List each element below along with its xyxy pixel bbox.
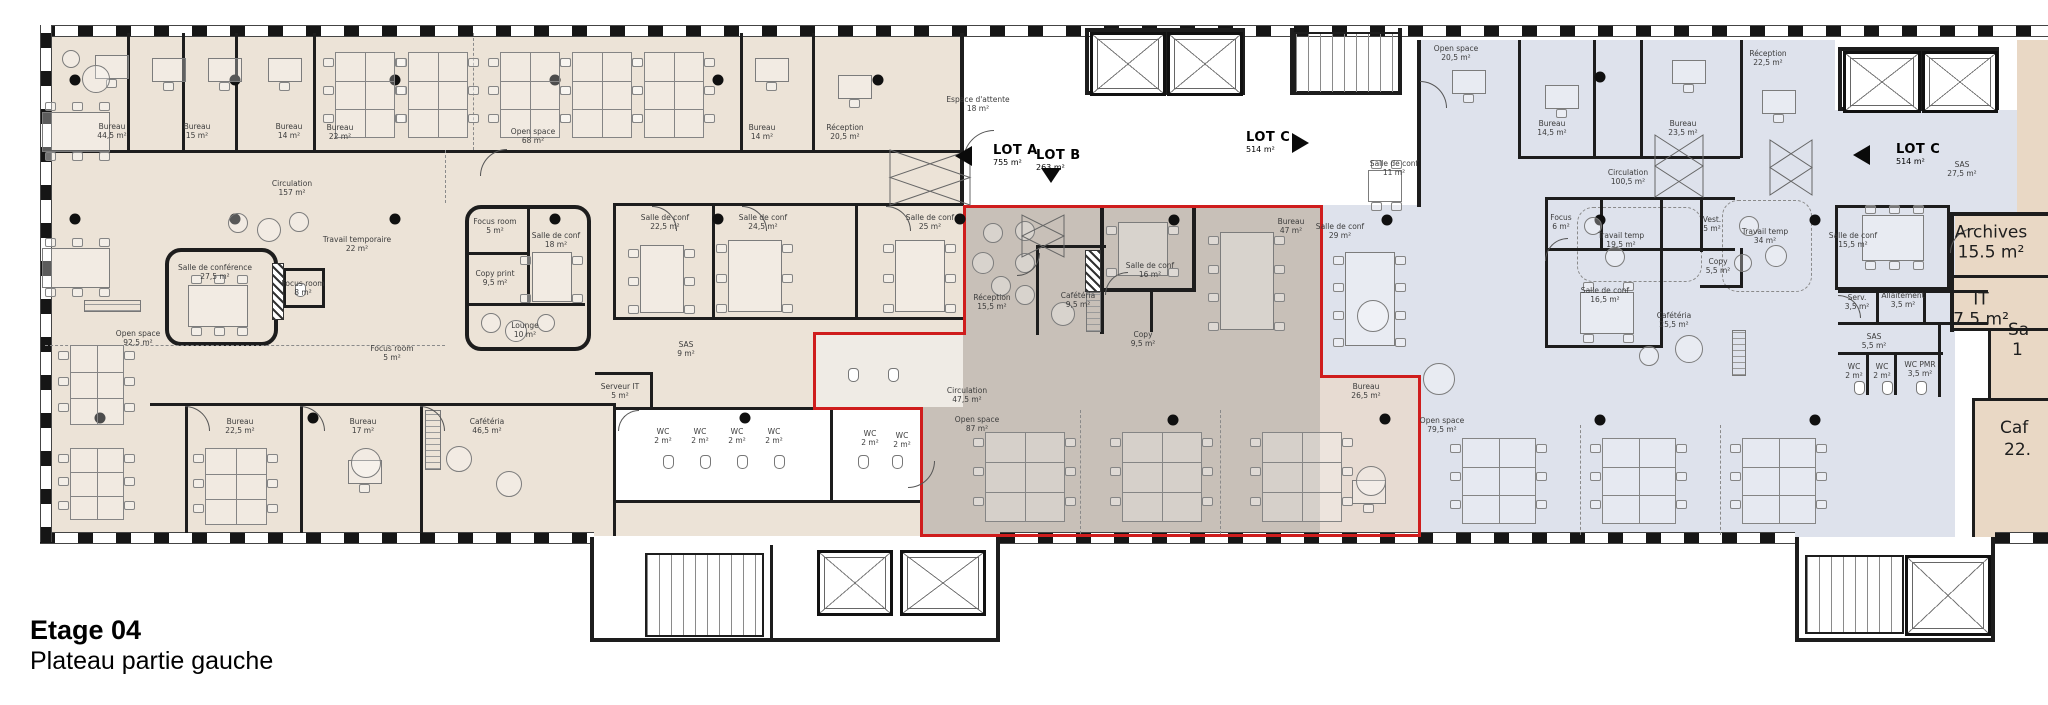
zone-fill [2017, 40, 2048, 215]
chair [267, 479, 278, 488]
wall [613, 403, 616, 536]
room-label-a24: Bureau17 m² [350, 417, 377, 435]
chair [163, 82, 174, 91]
chair [973, 497, 984, 506]
elevator [1922, 51, 1998, 113]
column-dot [713, 214, 724, 225]
wall [1838, 47, 1842, 110]
chair [1683, 84, 1694, 93]
chair [1110, 467, 1121, 476]
chair [1730, 472, 1741, 481]
chair [488, 86, 499, 95]
wall [1700, 285, 1743, 288]
chair [1274, 265, 1285, 274]
wall [996, 537, 1000, 642]
round-table [481, 313, 501, 333]
chair [396, 86, 407, 95]
room-label-a15: Open space92,5 m² [116, 329, 160, 347]
desk-bank [644, 52, 704, 138]
meeting-table [188, 285, 248, 327]
chair [468, 58, 479, 67]
room-label-a4: Bureau22 m² [327, 123, 354, 141]
round-table [537, 314, 555, 332]
chair [1623, 334, 1634, 343]
lot-outline [813, 332, 816, 410]
chair [684, 249, 695, 258]
room-label-c11: Salle de conf16,5 m² [1581, 286, 1629, 304]
chair [632, 114, 643, 123]
chair [396, 58, 407, 67]
chair [323, 58, 334, 67]
wall [650, 372, 653, 407]
chair [1676, 444, 1687, 453]
meeting-table [532, 252, 572, 302]
wall [1972, 398, 1975, 537]
chair [1913, 261, 1924, 270]
wall [127, 33, 130, 150]
wall [1660, 197, 1663, 250]
round-table [1734, 254, 1752, 272]
room-label-a9: Travail temporaire22 m² [323, 235, 391, 253]
wall [1795, 638, 1995, 642]
chair [124, 477, 135, 486]
chair [520, 256, 531, 265]
chair [1250, 467, 1261, 476]
lot-marker-lotC1: LOT C514 m² [1246, 130, 1290, 154]
chair [488, 58, 499, 67]
chair [704, 58, 715, 67]
chair [1202, 467, 1213, 476]
column-dot [70, 75, 81, 86]
chair [193, 454, 204, 463]
elevator [1843, 51, 1921, 113]
chair [99, 102, 110, 111]
chair [45, 288, 56, 297]
column-dot [873, 75, 884, 86]
room-label-a21: Serveur IT5 m² [601, 382, 640, 400]
lot-marker-lotC2: LOT C514 m² [1896, 142, 1940, 166]
lot-arrow-lotC1 [1292, 133, 1309, 153]
chair [704, 114, 715, 123]
round-table [1015, 285, 1035, 305]
meeting-table [728, 240, 782, 312]
facade-wall [40, 25, 2048, 37]
round-table [446, 446, 472, 472]
wall [1795, 537, 1799, 642]
wall [527, 205, 530, 305]
wall [1640, 40, 1643, 158]
chair [1865, 261, 1876, 270]
chair [1208, 265, 1219, 274]
wall [1545, 197, 1735, 200]
desk [1672, 60, 1706, 84]
chair [237, 327, 248, 336]
chair [632, 58, 643, 67]
room-label-a19: Salle de conf25 m² [906, 213, 954, 231]
chair [1395, 256, 1406, 265]
chair [1450, 444, 1461, 453]
desk-bank [572, 52, 632, 138]
chair [1371, 202, 1382, 211]
lot-outline [963, 205, 966, 335]
round-table [82, 65, 110, 93]
chair [1065, 467, 1076, 476]
chair [323, 86, 334, 95]
wall [595, 372, 653, 375]
chair [1463, 94, 1474, 103]
chair [1583, 334, 1594, 343]
chair [1065, 438, 1076, 447]
meeting-table [640, 245, 684, 313]
clipped-label: Caf [2000, 418, 2028, 438]
room-label-a3: Bureau14 m² [276, 122, 303, 140]
chair [124, 501, 135, 510]
room-label-d5: SAS5,5 m² [1862, 332, 1887, 350]
desk-bank [205, 448, 267, 525]
wall [740, 33, 743, 150]
rounded-zone-dashed [1722, 200, 1812, 292]
chair [628, 305, 639, 314]
wall [1950, 275, 2048, 278]
chair [219, 82, 230, 91]
chair [214, 327, 225, 336]
room-label-a23: Bureau22,5 m² [225, 417, 254, 435]
room-label-c15: Open space79,5 m² [1420, 416, 1464, 434]
room-label-b1: Réception15,5 m² [973, 293, 1010, 311]
desk-bank [1262, 432, 1342, 522]
chair [72, 152, 83, 161]
chair [1110, 497, 1121, 506]
wc-fixture [858, 455, 869, 469]
column-dot [1810, 215, 1821, 226]
round-table [1605, 247, 1625, 267]
room-label-d7: WC2 m² [1873, 362, 1890, 380]
stair [645, 553, 764, 637]
chair [99, 288, 110, 297]
column-dot [1380, 414, 1391, 425]
chair [1065, 497, 1076, 506]
column-dot [1168, 415, 1179, 426]
round-table [1357, 300, 1389, 332]
lot-outline [920, 534, 1421, 537]
chair [1730, 500, 1741, 509]
wall [235, 33, 238, 150]
round-table [1423, 363, 1455, 395]
chair [1816, 444, 1827, 453]
round-table [228, 213, 248, 233]
floor-plan-canvas: Bureau44,5 m²Bureau15 m²Bureau14 m²Burea… [0, 0, 2048, 705]
wall [1938, 322, 1941, 397]
meeting-table [1345, 252, 1395, 346]
room-label-d4: Allaitement3,5 m² [1881, 291, 1924, 309]
chair [58, 477, 69, 486]
wall [283, 268, 325, 271]
column-dot [1595, 415, 1606, 426]
chair [883, 244, 894, 253]
wc-fixture [892, 455, 903, 469]
room-label-a17: Salle de conf22,5 m² [641, 213, 689, 231]
room-label-a2: Bureau15 m² [184, 122, 211, 140]
wall [830, 407, 833, 502]
room-label-c7: SAS27,5 m² [1947, 160, 1976, 178]
wall [283, 305, 325, 308]
dashed-partition [1080, 410, 1081, 534]
desk [268, 58, 302, 82]
wall [1085, 28, 1089, 95]
wall [613, 203, 616, 320]
chair [468, 114, 479, 123]
chair [716, 244, 727, 253]
room-label-c9: Salle de conf15,5 m² [1829, 231, 1877, 249]
chair [782, 304, 793, 313]
elevator [817, 550, 893, 616]
chair [1889, 261, 1900, 270]
chair [1274, 322, 1285, 331]
chair [124, 403, 135, 412]
desk [838, 75, 872, 99]
room-label-b3: Salle de conf16 m² [1126, 261, 1174, 279]
chair [58, 501, 69, 510]
desk [755, 58, 789, 82]
room-label-b7: Open space87 m² [955, 415, 999, 433]
round-table [257, 218, 281, 242]
chair [1168, 226, 1179, 235]
room-label-c8: Travail temp34 m² [1742, 227, 1788, 245]
chair [1395, 311, 1406, 320]
chair [124, 454, 135, 463]
column-dot [955, 214, 966, 225]
round-table [1675, 335, 1703, 363]
room-label-a31: WC2 m² [893, 431, 910, 449]
chair [99, 238, 110, 247]
room-label-a30: WC2 m² [861, 429, 878, 447]
chair [72, 102, 83, 111]
column-dot [1382, 215, 1393, 226]
wall [1518, 40, 1521, 158]
chair [45, 152, 56, 161]
wall [770, 545, 773, 640]
meeting-table [42, 248, 110, 288]
chair [58, 351, 69, 360]
chair [560, 58, 571, 67]
wall [1991, 537, 1995, 642]
stair [1805, 555, 1904, 634]
room-label-b4: Copy9,5 m² [1131, 330, 1156, 348]
chair [72, 238, 83, 247]
chair [124, 351, 135, 360]
wc-fixture [737, 455, 748, 469]
wall [1640, 156, 1740, 159]
chair [716, 304, 727, 313]
chair [1676, 500, 1687, 509]
room-label-b8: Bureau26,5 m² [1351, 382, 1380, 400]
poche-wall [1085, 250, 1101, 292]
room-label-c14: Copy5,5 m² [1706, 257, 1731, 275]
desk-bank [1122, 432, 1202, 522]
wc-fixture [700, 455, 711, 469]
wc-fixture [848, 368, 859, 382]
chair [1450, 500, 1461, 509]
chair [1590, 444, 1601, 453]
clipped-label: Sa [2008, 320, 2029, 340]
round-table [1015, 221, 1035, 241]
wall [1838, 352, 1943, 355]
wall [1866, 352, 1869, 395]
desk-bank [985, 432, 1065, 522]
desk-bank [1462, 438, 1536, 524]
round-table [1356, 466, 1386, 496]
room-label-d8: WC PMR3,5 m² [1904, 360, 1935, 378]
room-label-a1: Bureau44,5 m² [97, 122, 126, 140]
chair [396, 114, 407, 123]
room-label-d3: Serv.3,5 m² [1845, 293, 1870, 311]
room-label-c10: Travail temp19,5 m² [1598, 231, 1644, 249]
wc-fixture [1916, 381, 1927, 395]
column-dot [390, 214, 401, 225]
chair [323, 114, 334, 123]
room-label-c1: Open space20,5 m² [1434, 44, 1478, 62]
lot-arrow-lotC2 [1853, 145, 1870, 165]
chair [1274, 236, 1285, 245]
chair [849, 99, 860, 108]
lot-arrow-lotB [1041, 168, 1061, 183]
chair [267, 454, 278, 463]
wall [960, 33, 964, 205]
chair [1202, 497, 1213, 506]
room-label-d6: WC2 m² [1845, 362, 1862, 380]
chair [58, 377, 69, 386]
chair [1676, 472, 1687, 481]
chair [945, 304, 956, 313]
room-label-c17: Salle de conf29 m² [1316, 222, 1364, 240]
chair [1536, 444, 1547, 453]
chair [191, 327, 202, 336]
lot-marker-lotA: LOT A755 m² [993, 143, 1038, 167]
wc-fixture [774, 455, 785, 469]
wall [812, 33, 815, 150]
column-dot [70, 214, 81, 225]
chair [560, 114, 571, 123]
wall [855, 203, 858, 320]
chair [1333, 311, 1344, 320]
desk [208, 58, 242, 82]
chair [1106, 226, 1117, 235]
chair [1333, 256, 1344, 265]
chair [1363, 504, 1374, 513]
chair [1208, 293, 1219, 302]
room-label-a11: Focus room8 m² [281, 279, 324, 297]
room-label-a8: Circulation157 m² [272, 179, 312, 197]
room-label-d1: Archives15.5 m² [1955, 223, 2027, 262]
meeting-table [1220, 232, 1274, 330]
room-label-c13: Vest.5 m² [1703, 215, 1721, 233]
desk [1452, 70, 1486, 94]
wall [1593, 40, 1596, 158]
chair [1342, 438, 1353, 447]
elevator [1167, 32, 1243, 96]
wall [1150, 290, 1153, 332]
chair [1250, 438, 1261, 447]
clipped-label: 1 [2012, 340, 2023, 360]
counter [84, 300, 141, 312]
facade-wall [40, 532, 594, 544]
room-label-c18: Espace d'attente18 m² [946, 95, 1009, 113]
wall [590, 638, 1000, 642]
chair [628, 277, 639, 286]
room-label-a6: Bureau14 m² [749, 123, 776, 141]
wc-fixture [888, 368, 899, 382]
room-label-b5: Bureau47 m² [1278, 217, 1305, 235]
floor-title: Etage 04 [30, 616, 273, 646]
chair [72, 288, 83, 297]
chair [1816, 500, 1827, 509]
room-label-a20: SAS9 m² [677, 340, 694, 358]
room-label-a28: WC2 m² [728, 427, 745, 445]
chair [1913, 205, 1924, 214]
chair [1333, 283, 1344, 292]
desk-bank [1742, 438, 1816, 524]
chair [782, 274, 793, 283]
room-label-a27: WC2 m² [691, 427, 708, 445]
wall [1545, 197, 1548, 347]
chair [1274, 293, 1285, 302]
column-dot [713, 75, 724, 86]
desk-bank [70, 448, 124, 520]
chair [193, 479, 204, 488]
chair [973, 467, 984, 476]
chair [560, 86, 571, 95]
round-table [289, 212, 309, 232]
floor-subtitle: Plateau partie gauche [30, 646, 273, 676]
room-label-a14: Copy print9,5 m² [475, 269, 514, 287]
clipped-label: 22. [2004, 440, 2031, 460]
chair [1333, 338, 1344, 347]
round-table [972, 252, 994, 274]
wall [1972, 398, 2048, 401]
room-label-a5: Open space68 m² [511, 127, 555, 145]
chair [1730, 444, 1741, 453]
stair [1294, 32, 1402, 94]
room-label-c16: Cafétéria25,5 m² [1657, 311, 1691, 329]
chair [1395, 338, 1406, 347]
lot-arrow-lotA [955, 146, 972, 166]
column-dot [1595, 72, 1606, 83]
chair [520, 294, 531, 303]
room-label-a26: WC2 m² [654, 427, 671, 445]
chair [883, 274, 894, 283]
wc-fixture [663, 455, 674, 469]
wall [1192, 208, 1196, 292]
room-label-a16: Lounge10 m² [511, 321, 539, 339]
elevator [900, 550, 986, 616]
chair [1556, 109, 1567, 118]
lot-outline [963, 205, 1323, 208]
chair [45, 238, 56, 247]
chair [572, 256, 583, 265]
round-table [62, 50, 80, 68]
room-label-c3: Salle de conf11 m² [1370, 159, 1418, 177]
chair [782, 244, 793, 253]
chair [1391, 202, 1402, 211]
lot-outline [1320, 375, 1421, 378]
chair [1590, 500, 1601, 509]
dashed-partition [445, 150, 446, 203]
room-label-b2: Cafétéria9,5 m² [1061, 291, 1095, 309]
chair [632, 86, 643, 95]
desk-bank [500, 52, 560, 138]
wall [1740, 40, 1743, 158]
wall [613, 203, 963, 206]
